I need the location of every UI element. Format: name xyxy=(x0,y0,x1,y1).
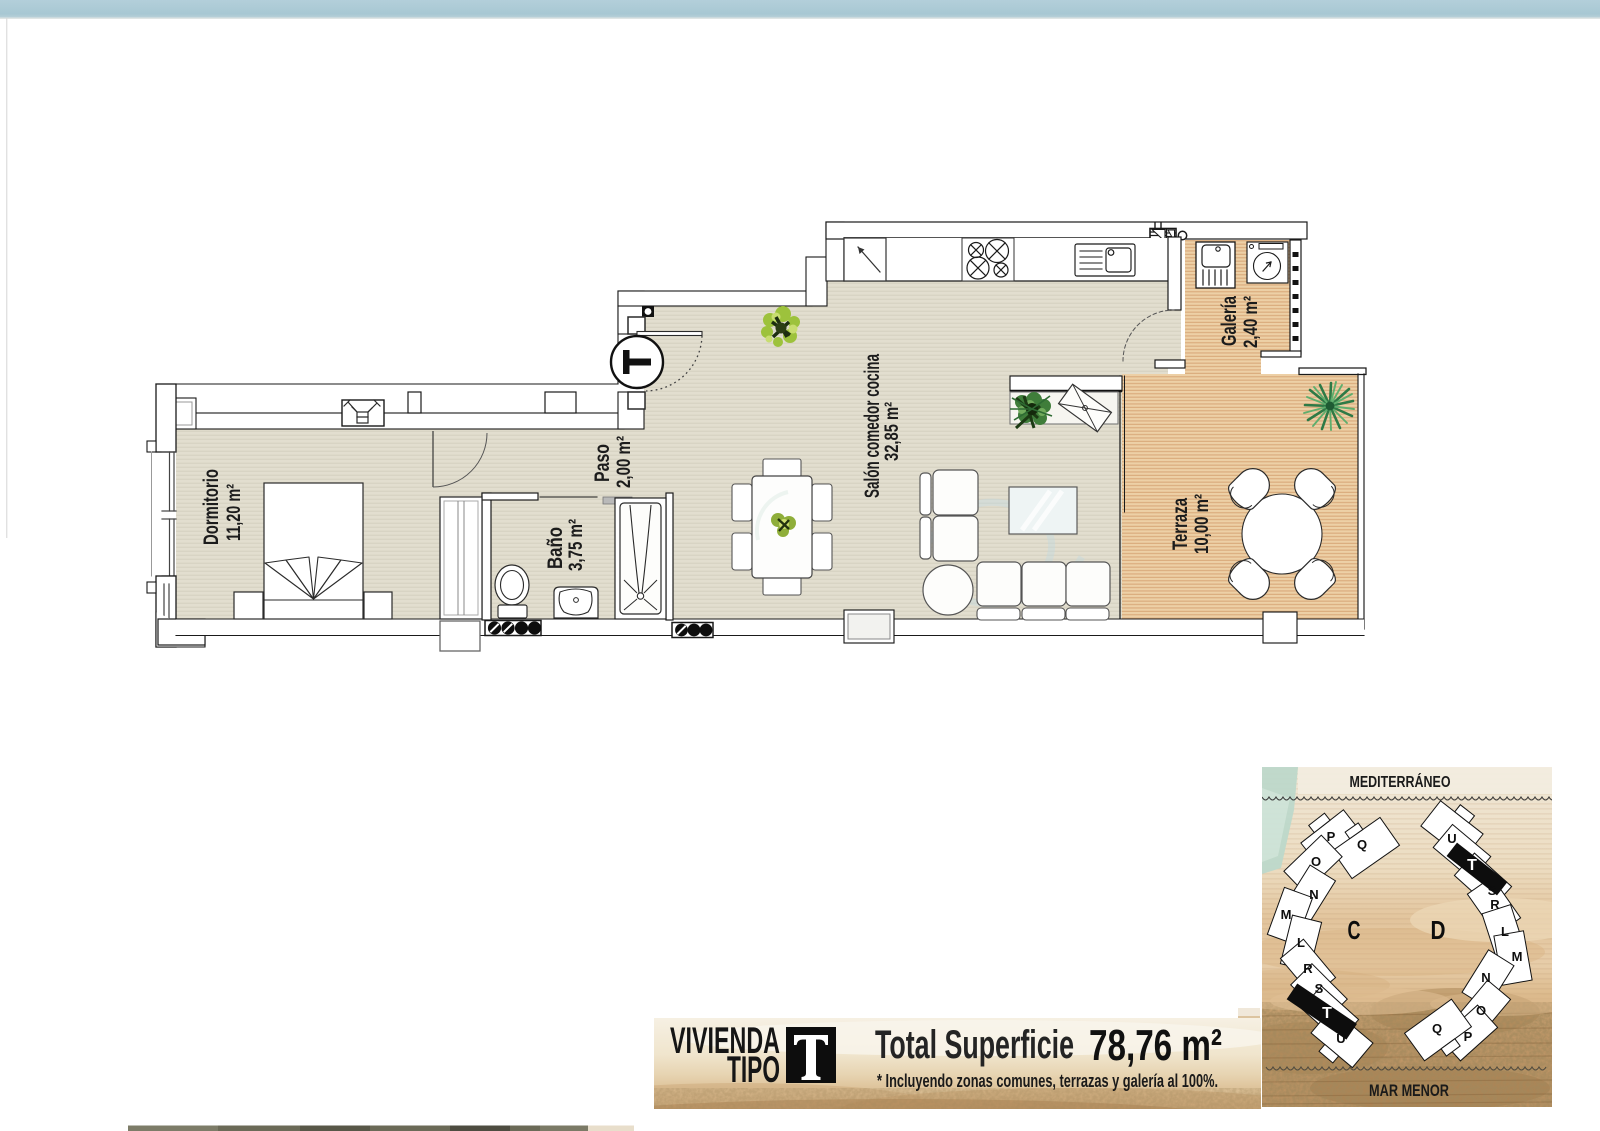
svg-text:3,75 m²: 3,75 m² xyxy=(566,519,587,571)
svg-text:11,20 m²: 11,20 m² xyxy=(224,484,245,541)
svg-text:Galería: Galería xyxy=(1218,296,1241,346)
svg-text:10,00 m²: 10,00 m² xyxy=(1192,494,1213,554)
svg-text:2,00 m²: 2,00 m² xyxy=(614,436,635,488)
svg-text:U: U xyxy=(1447,831,1456,846)
svg-text:MAR MENOR: MAR MENOR xyxy=(1369,1081,1449,1100)
svg-text:R: R xyxy=(1490,897,1500,912)
svg-text:N: N xyxy=(1309,887,1318,902)
svg-text:R: R xyxy=(1303,961,1313,976)
svg-text:P: P xyxy=(1464,1029,1473,1044)
svg-text:Total Superficie: Total Superficie xyxy=(875,1023,1074,1067)
svg-text:MEDITERRÁNEO: MEDITERRÁNEO xyxy=(1350,772,1451,791)
svg-text:T: T xyxy=(1322,1005,1332,1022)
svg-text:D: D xyxy=(1431,915,1446,945)
svg-text:32,85 m²: 32,85 m² xyxy=(882,402,903,461)
svg-text:Dormitorio: Dormitorio xyxy=(200,469,223,545)
svg-text:TIPO: TIPO xyxy=(727,1049,780,1090)
svg-text:M: M xyxy=(1281,907,1292,922)
svg-text:T: T xyxy=(1467,857,1477,874)
svg-text:M: M xyxy=(1512,949,1523,964)
svg-text:* Incluyendo zonas comunes, te: * Incluyendo zonas comunes, terrazas y g… xyxy=(877,1071,1218,1091)
svg-text:Salón comedor cocina: Salón comedor cocina xyxy=(861,354,884,498)
svg-text:Terraza: Terraza xyxy=(1169,498,1192,550)
svg-text:Baño: Baño xyxy=(544,527,567,569)
svg-text:U: U xyxy=(1336,1031,1345,1046)
svg-text:C: C xyxy=(1348,915,1361,945)
svg-text:L: L xyxy=(1501,924,1509,939)
svg-text:L: L xyxy=(1297,935,1305,950)
svg-text:S: S xyxy=(1315,981,1324,996)
svg-text:78,76 m²: 78,76 m² xyxy=(1089,1021,1222,1070)
svg-text:S: S xyxy=(1488,883,1497,898)
svg-text:Q: Q xyxy=(1432,1021,1442,1036)
svg-text:P: P xyxy=(1327,829,1336,844)
svg-text:Paso: Paso xyxy=(591,444,614,482)
svg-text:Q: Q xyxy=(1357,837,1367,852)
svg-text:N: N xyxy=(1481,970,1490,985)
svg-text:O: O xyxy=(1311,854,1321,869)
svg-text:O: O xyxy=(1476,1003,1486,1018)
svg-text:2,40 m²: 2,40 m² xyxy=(1241,296,1262,348)
